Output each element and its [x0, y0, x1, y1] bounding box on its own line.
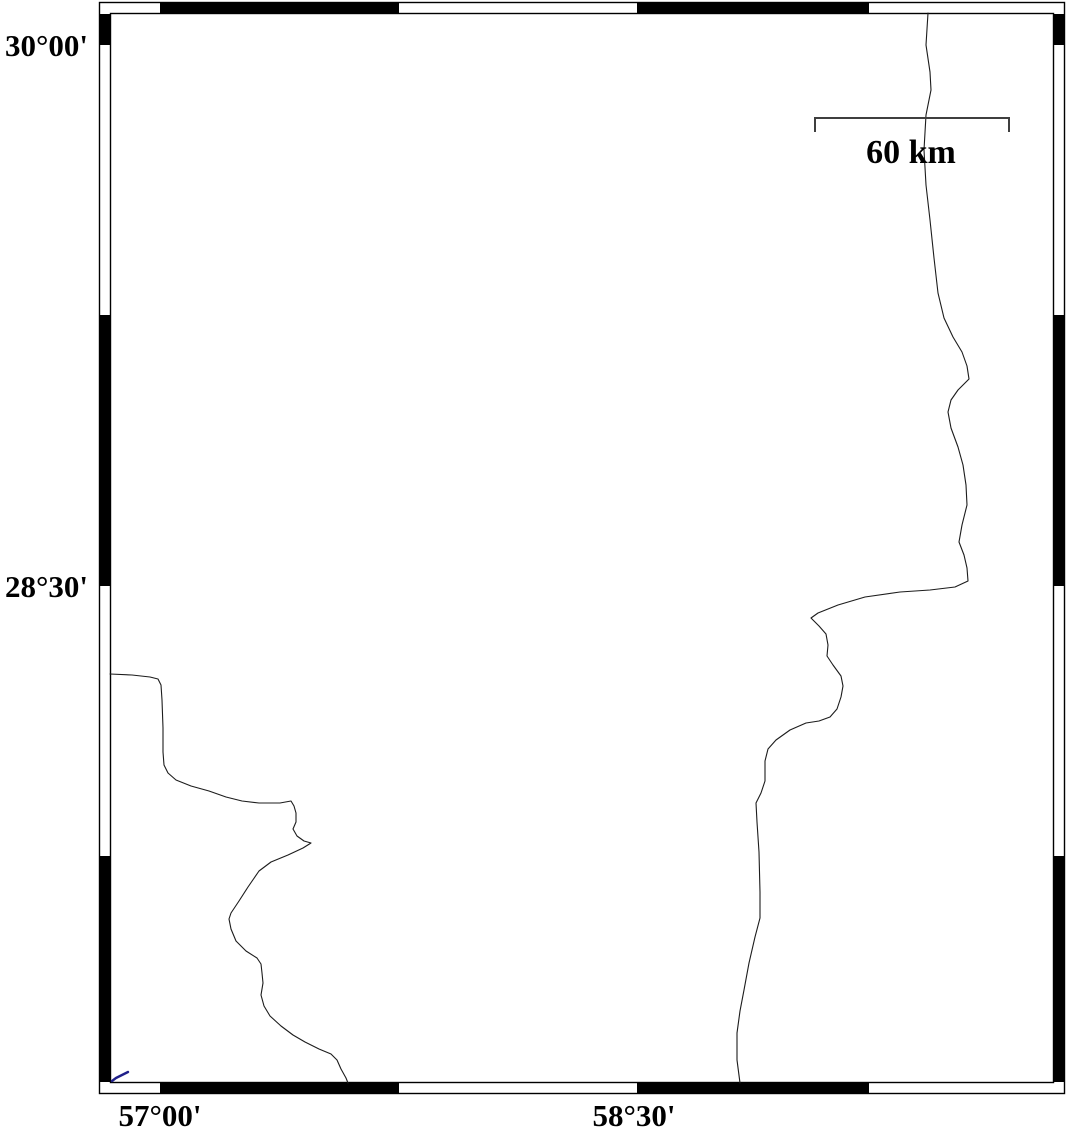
frame-tick-bottom-2	[637, 1083, 869, 1094]
longitude-label-58-30: 58°30'	[554, 1098, 714, 1131]
map-figure: 30°00' 28°30' 57°00' 58°30' 60 km	[0, 0, 1066, 1131]
west-boundary-line	[110, 674, 348, 1083]
scale-bar	[815, 118, 1009, 131]
frame-tick-left-1	[100, 14, 111, 45]
frame-tick-right-3	[1054, 856, 1065, 1082]
frame-tick-right-2	[1054, 315, 1065, 586]
scale-bar-label: 60 km	[811, 135, 1011, 171]
frame-tick-bottom-1	[160, 1083, 399, 1094]
frame-tick-left-2	[100, 315, 111, 586]
latitude-label-30-00: 30°00'	[5, 28, 88, 64]
frame-tick-left-3	[100, 856, 111, 1082]
frame-tick-top-1	[160, 3, 399, 14]
frame-inner-rect	[111, 14, 1054, 1083]
frame-tick-right-1	[1054, 14, 1065, 45]
river-mark	[112, 1072, 128, 1081]
east-boundary-line	[737, 13, 969, 1083]
latitude-label-28-30: 28°30'	[5, 569, 88, 605]
longitude-label-57-00: 57°00'	[80, 1098, 240, 1131]
frame-tick-top-2	[637, 3, 869, 14]
